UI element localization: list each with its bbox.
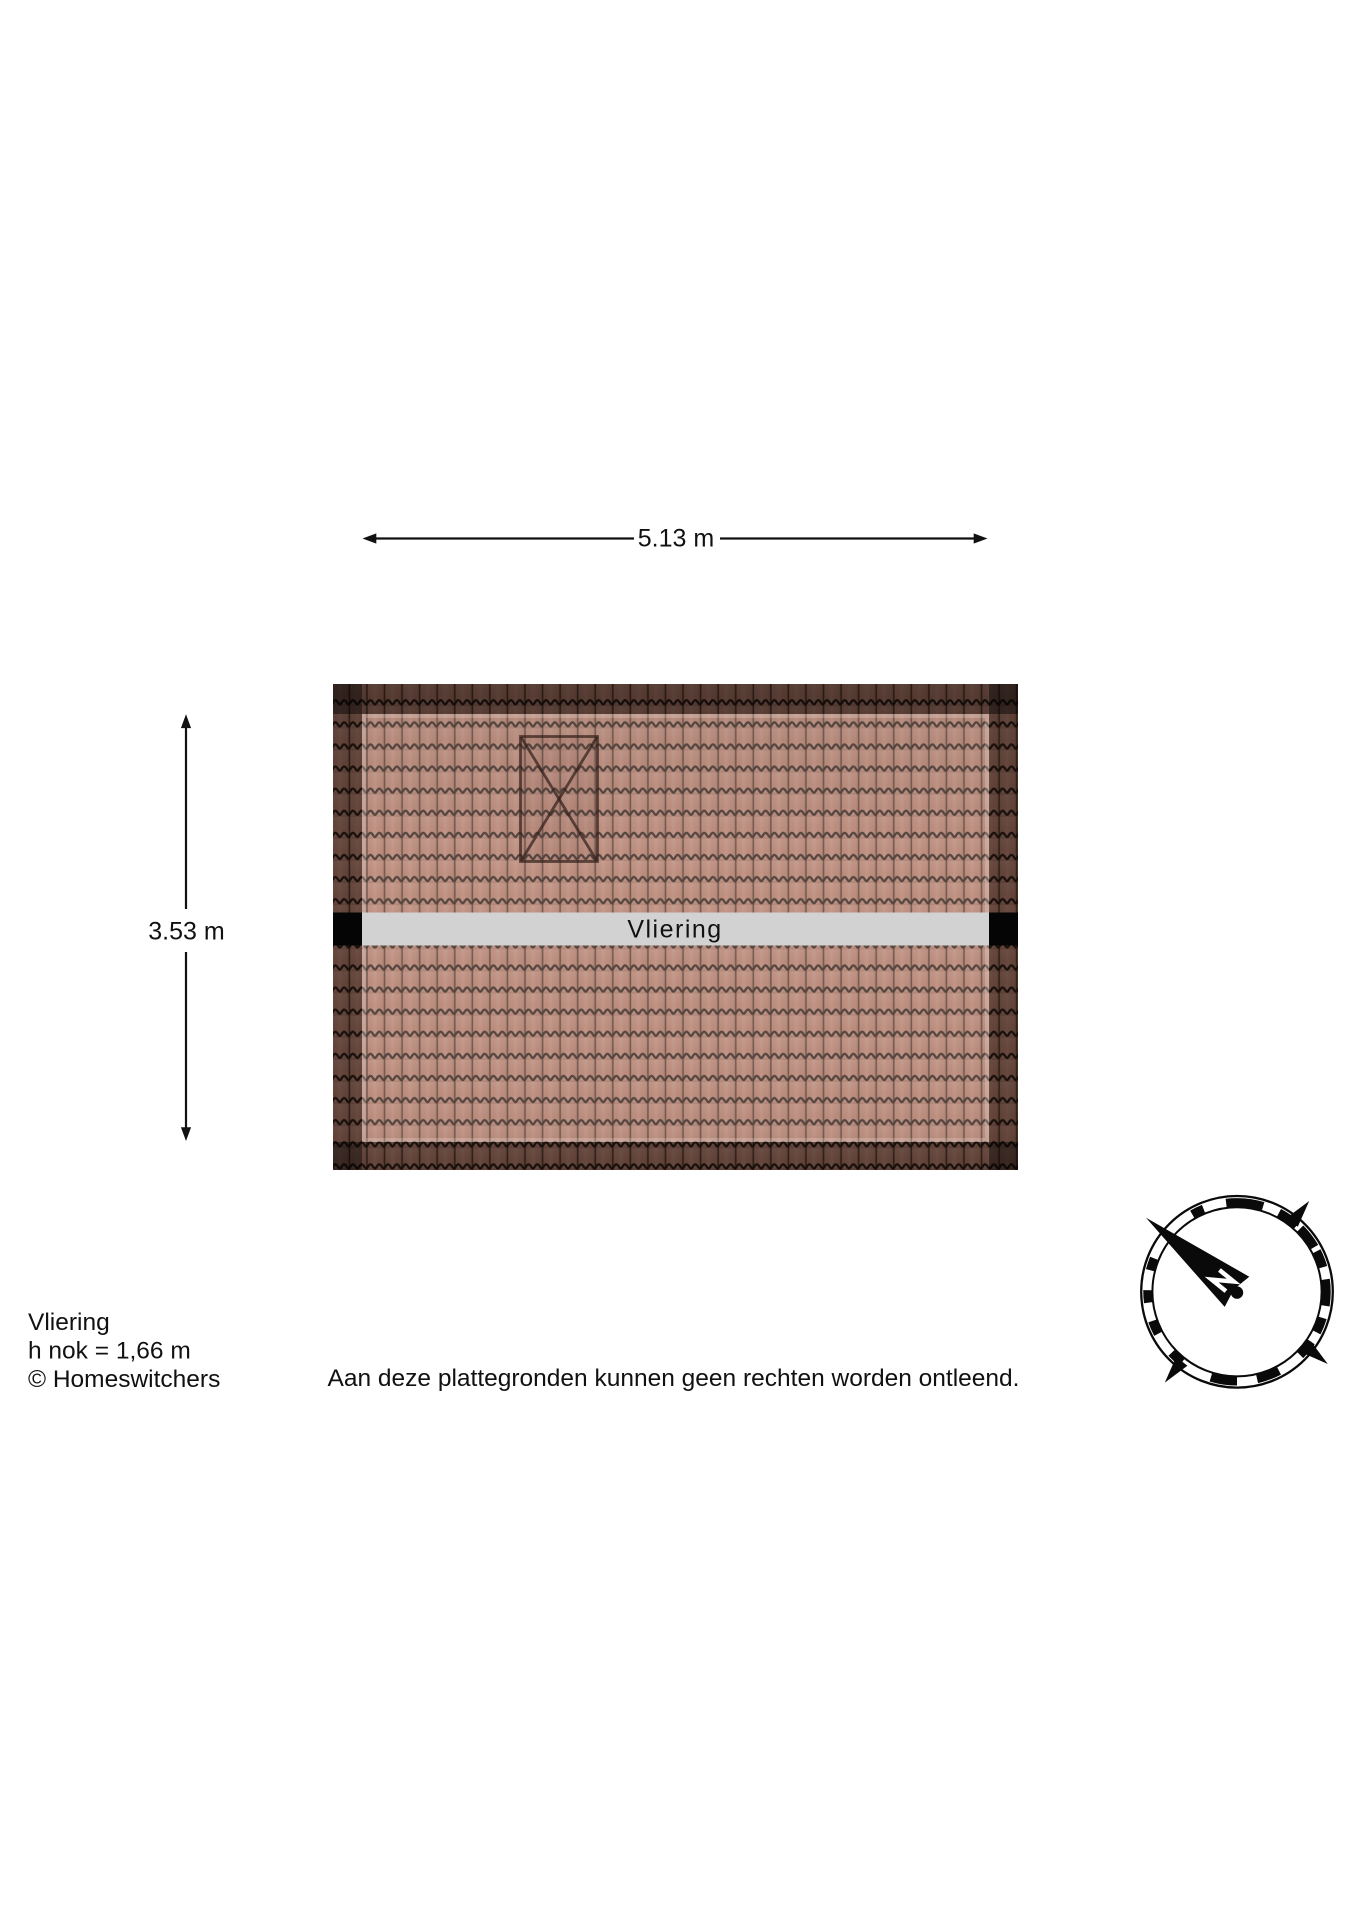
svg-text:Vliering: Vliering: [28, 1309, 110, 1336]
svg-text:h nok = 1,66 m: h nok = 1,66 m: [28, 1338, 191, 1365]
svg-text:© Homeswitchers: © Homeswitchers: [28, 1366, 220, 1393]
svg-text:Aan deze plattegronden kunnen: Aan deze plattegronden kunnen geen recht…: [328, 1365, 1020, 1392]
svg-text:3.53 m: 3.53 m: [148, 918, 224, 946]
svg-text:5.13 m: 5.13 m: [638, 525, 714, 553]
svg-text:Vliering: Vliering: [627, 916, 722, 944]
